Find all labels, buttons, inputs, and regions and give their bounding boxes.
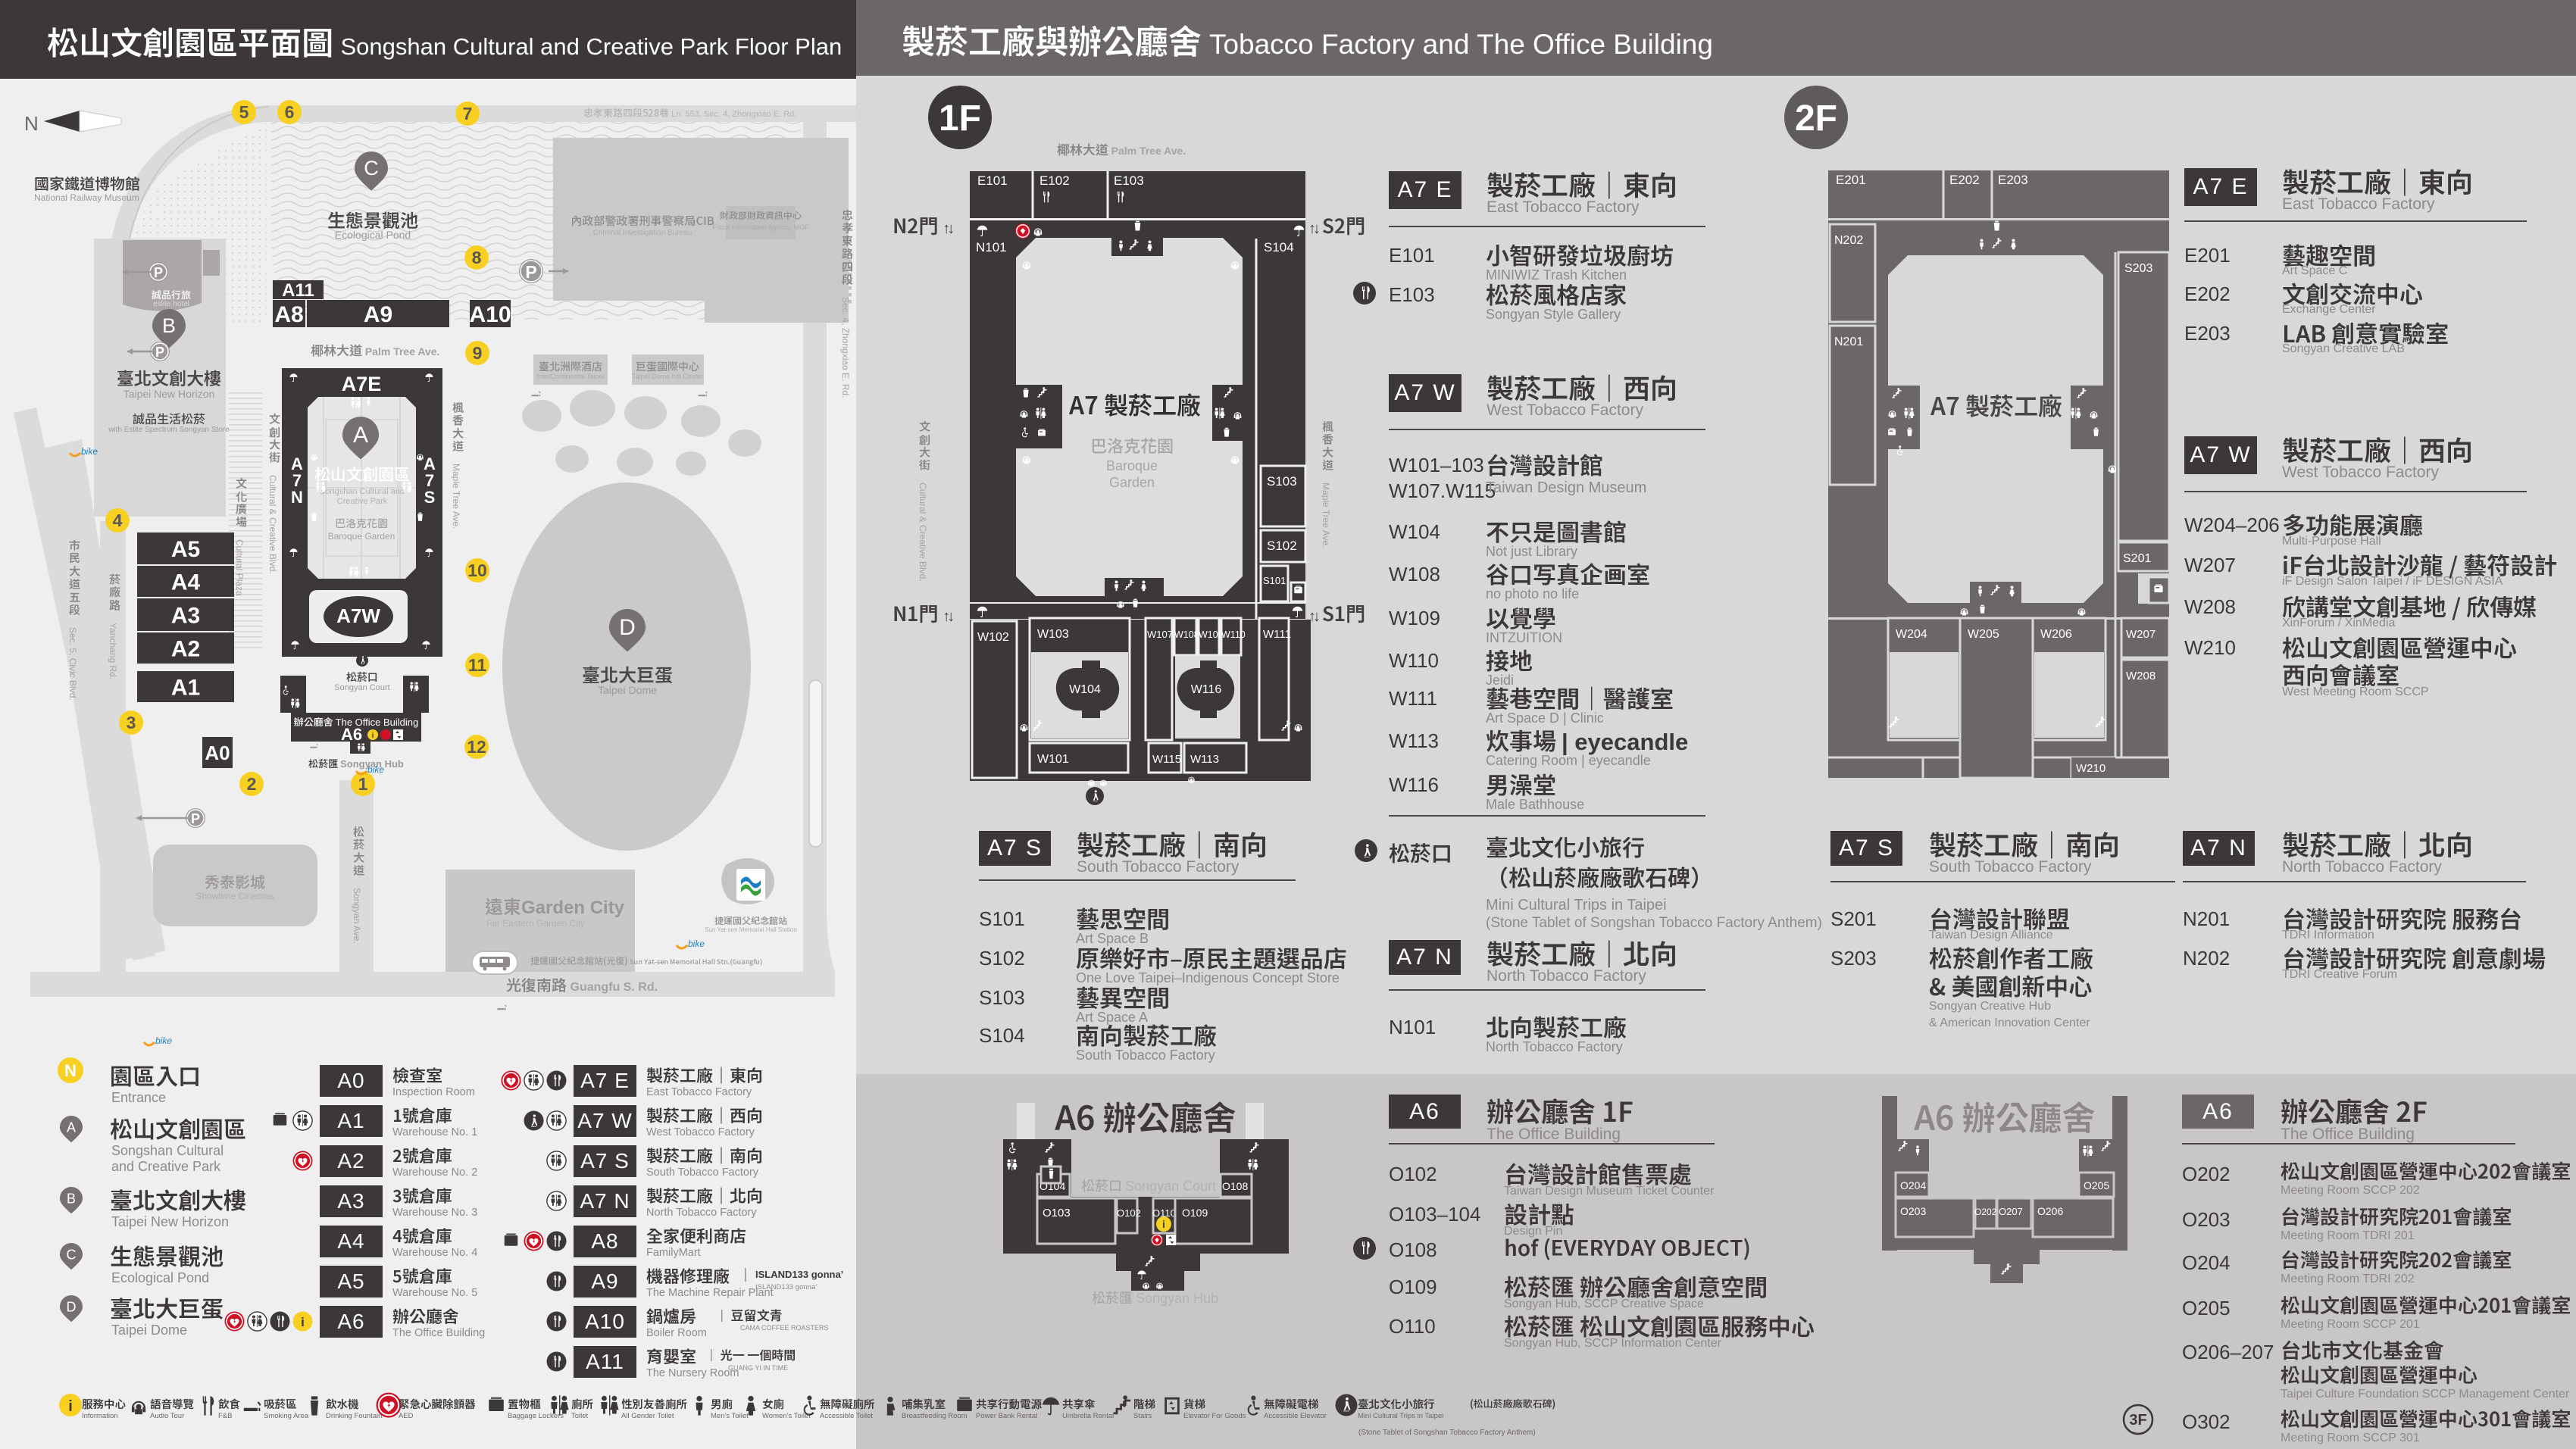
svg-text:i: i [68, 1398, 73, 1415]
svg-text:3F: 3F [2129, 1412, 2146, 1429]
